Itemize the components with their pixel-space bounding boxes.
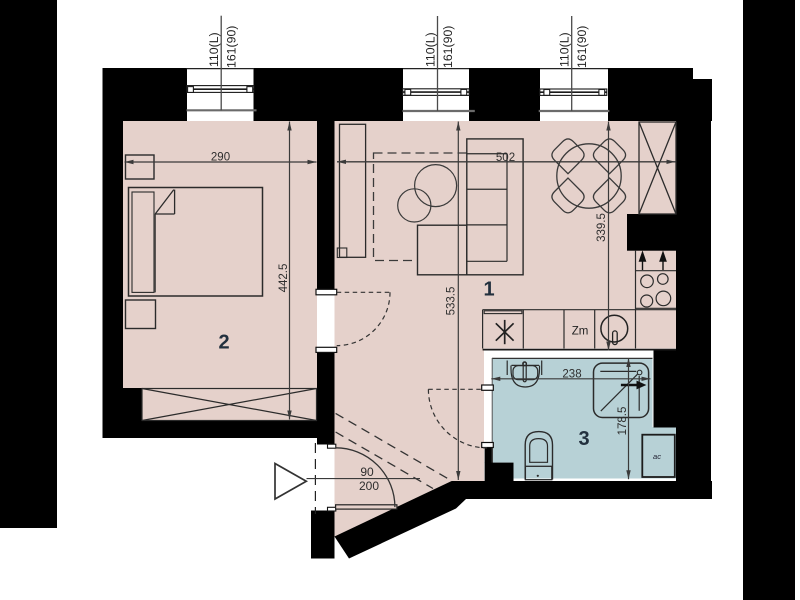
svg-text:Zm: Zm [572,326,589,338]
svg-text:339.5: 339.5 [596,213,608,242]
svg-text:1: 1 [483,279,494,301]
svg-text:290: 290 [211,151,230,163]
svg-text:2: 2 [218,332,229,354]
svg-text:200: 200 [359,479,379,493]
svg-text:3: 3 [578,428,589,450]
svg-text:110(L): 110(L) [424,32,438,67]
svg-text:110(L): 110(L) [207,32,221,67]
svg-text:178.5: 178.5 [617,407,629,436]
svg-text:238: 238 [562,369,581,381]
svg-text:ac: ac [653,452,661,461]
svg-text:442.5: 442.5 [278,264,290,293]
svg-text:502: 502 [496,152,515,164]
svg-text:161(90): 161(90) [575,26,589,68]
svg-text:110(L): 110(L) [558,32,572,67]
svg-text:90: 90 [360,465,374,479]
svg-text:533.5: 533.5 [446,287,458,316]
svg-text:161(90): 161(90) [225,26,239,68]
svg-text:161(90): 161(90) [441,26,455,68]
